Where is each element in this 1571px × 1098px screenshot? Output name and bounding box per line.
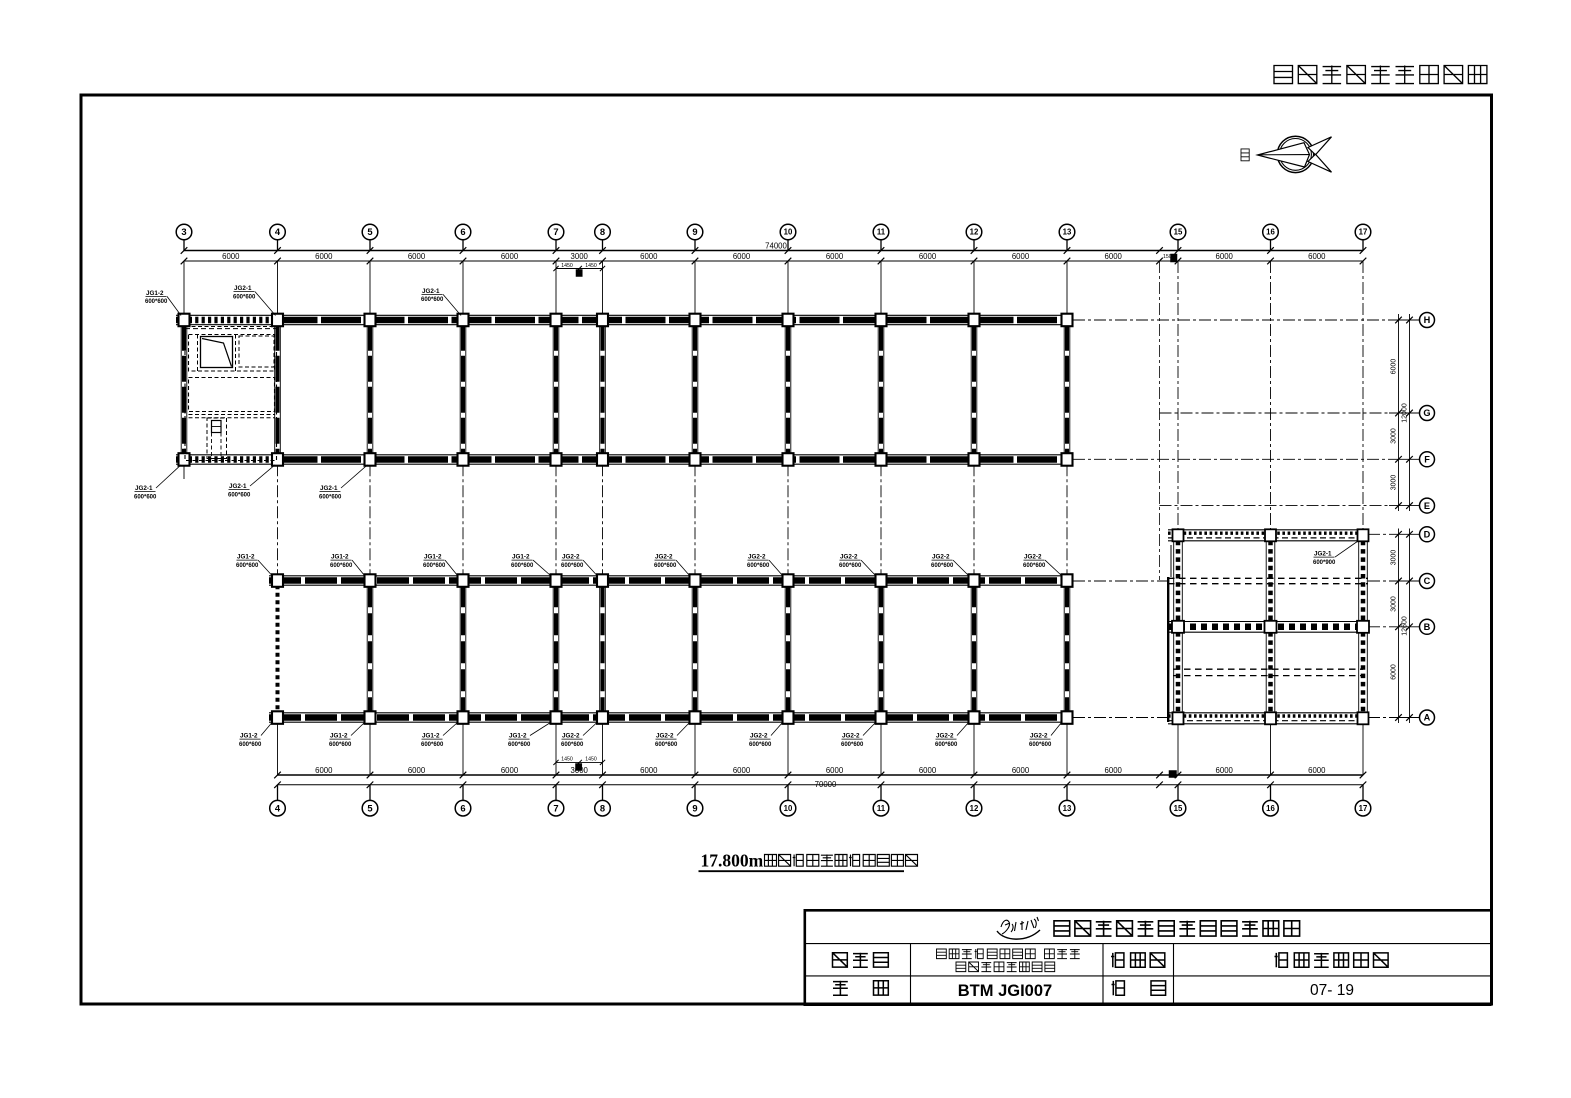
svg-text:6000: 6000 <box>1308 252 1326 261</box>
svg-text:6000: 6000 <box>733 252 751 261</box>
svg-text:1450: 1450 <box>585 263 597 269</box>
svg-text:6000: 6000 <box>640 252 658 261</box>
svg-text:D: D <box>1424 530 1431 540</box>
svg-text:12000: 12000 <box>1402 403 1409 423</box>
svg-text:600*600: 600*600 <box>423 563 446 569</box>
svg-text:JG2-2: JG2-2 <box>562 733 580 740</box>
svg-text:6000: 6000 <box>501 252 519 261</box>
svg-text:JG2-2: JG2-2 <box>562 554 580 561</box>
svg-text:6000: 6000 <box>1012 766 1030 775</box>
svg-text:600*600: 600*600 <box>655 742 678 748</box>
svg-text:3000: 3000 <box>571 252 589 261</box>
svg-text:11: 11 <box>877 228 886 237</box>
svg-text:600*600: 600*600 <box>747 563 770 569</box>
svg-text:3: 3 <box>181 226 186 237</box>
svg-text:1450: 1450 <box>561 263 573 269</box>
svg-text:600*600: 600*600 <box>931 563 954 569</box>
svg-text:5: 5 <box>367 802 372 813</box>
svg-text:JG2-2: JG2-2 <box>656 733 674 740</box>
svg-text:15: 15 <box>1174 228 1183 237</box>
svg-text:6000: 6000 <box>1391 664 1398 680</box>
svg-text:BTM JGI007: BTM JGI007 <box>958 982 1052 1000</box>
svg-text:600*600: 600*600 <box>228 492 251 498</box>
svg-text:B: B <box>1424 622 1431 632</box>
svg-text:6000: 6000 <box>1012 252 1030 261</box>
svg-text:9: 9 <box>692 802 697 813</box>
svg-text:JG2-1: JG2-1 <box>135 485 153 492</box>
svg-text:10: 10 <box>784 228 793 237</box>
svg-text:JG2-2: JG2-2 <box>936 733 954 740</box>
svg-text:600*600: 600*600 <box>511 563 534 569</box>
svg-text:7: 7 <box>553 226 558 237</box>
svg-text:5: 5 <box>367 226 372 237</box>
svg-text:600*600: 600*600 <box>239 742 262 748</box>
svg-text:600*600: 600*600 <box>508 742 531 748</box>
svg-text:10: 10 <box>784 804 793 813</box>
svg-text:13: 13 <box>1063 228 1072 237</box>
svg-text:JG1-2: JG1-2 <box>424 554 442 561</box>
svg-text:600*600: 600*600 <box>654 563 677 569</box>
svg-text:600*600: 600*600 <box>236 563 259 569</box>
svg-text:F: F <box>1424 455 1430 465</box>
svg-text:600*600: 600*600 <box>841 742 864 748</box>
svg-text:74000: 74000 <box>765 241 787 250</box>
svg-text:70000: 70000 <box>815 780 837 789</box>
svg-text:600*600: 600*600 <box>1023 563 1046 569</box>
svg-text:600*600: 600*600 <box>561 563 584 569</box>
svg-text:C: C <box>1424 576 1431 586</box>
svg-text:A: A <box>1424 713 1431 723</box>
svg-text:4: 4 <box>275 226 281 237</box>
svg-text:JG2-2: JG2-2 <box>750 733 768 740</box>
svg-text:JG2-1: JG2-1 <box>422 288 440 295</box>
svg-text:6000: 6000 <box>826 252 844 261</box>
svg-text:3000: 3000 <box>1391 475 1398 491</box>
svg-text:13: 13 <box>1063 804 1072 813</box>
svg-text:12: 12 <box>970 228 979 237</box>
svg-text:6000: 6000 <box>1216 252 1234 261</box>
svg-text:600*600: 600*600 <box>421 742 444 748</box>
svg-text:JG1-2: JG1-2 <box>240 733 258 740</box>
svg-text:8: 8 <box>600 226 605 237</box>
svg-text:17: 17 <box>1359 804 1368 813</box>
svg-text:6000: 6000 <box>1105 252 1123 261</box>
svg-text:6000: 6000 <box>315 766 333 775</box>
svg-text:6000: 6000 <box>919 766 937 775</box>
svg-text:6000: 6000 <box>919 252 937 261</box>
svg-text:11: 11 <box>877 804 886 813</box>
svg-text:6000: 6000 <box>222 252 240 261</box>
svg-text:12: 12 <box>970 804 979 813</box>
svg-text:JG2-2: JG2-2 <box>842 733 860 740</box>
svg-text:JG1-2: JG1-2 <box>331 554 349 561</box>
svg-text:6000: 6000 <box>640 766 658 775</box>
svg-text:JG2-2: JG2-2 <box>748 554 766 561</box>
svg-text:600*600: 600*600 <box>839 563 862 569</box>
svg-text:6000: 6000 <box>1308 766 1326 775</box>
svg-text:JG1-2: JG1-2 <box>146 290 164 297</box>
svg-text:15: 15 <box>1174 804 1183 813</box>
svg-text:600*600: 600*600 <box>1029 742 1052 748</box>
svg-text:JG1-2: JG1-2 <box>509 733 527 740</box>
svg-text:6000: 6000 <box>1105 766 1123 775</box>
svg-text:E: E <box>1424 501 1430 511</box>
svg-text:600*600: 600*600 <box>319 494 342 500</box>
svg-text:6000: 6000 <box>826 766 844 775</box>
svg-text:4: 4 <box>275 802 281 813</box>
svg-text:3000: 3000 <box>1391 428 1398 444</box>
svg-text:6000: 6000 <box>1216 766 1234 775</box>
svg-text:8: 8 <box>600 802 605 813</box>
svg-text:JG2-2: JG2-2 <box>655 554 673 561</box>
svg-text:16: 16 <box>1266 804 1275 813</box>
svg-text:600*600: 600*600 <box>329 742 352 748</box>
svg-text:600*600: 600*600 <box>330 563 353 569</box>
svg-text:JG2-1: JG2-1 <box>229 483 247 490</box>
svg-text:6: 6 <box>460 802 465 813</box>
svg-text:JG1-2: JG1-2 <box>422 733 440 740</box>
svg-text:JG2-2: JG2-2 <box>932 554 950 561</box>
svg-text:6000: 6000 <box>501 766 519 775</box>
svg-text:600*600: 600*600 <box>145 299 168 305</box>
svg-text:3000: 3000 <box>1391 550 1398 566</box>
svg-text:600*600: 600*600 <box>421 297 444 303</box>
svg-text:JG2-1: JG2-1 <box>1314 551 1332 558</box>
svg-text:600*600: 600*600 <box>935 742 958 748</box>
svg-text:600*600: 600*600 <box>233 294 256 300</box>
svg-text:6: 6 <box>460 226 465 237</box>
svg-text:JG1-2: JG1-2 <box>512 554 530 561</box>
svg-text:17.800m: 17.800m <box>701 851 764 871</box>
svg-text:6000: 6000 <box>1391 359 1398 375</box>
svg-text:JG2-1: JG2-1 <box>234 285 252 292</box>
svg-text:9: 9 <box>692 226 697 237</box>
svg-text:3000: 3000 <box>1391 596 1398 612</box>
svg-text:H: H <box>1424 315 1431 325</box>
svg-text:JG1-2: JG1-2 <box>237 554 255 561</box>
svg-text:600*600: 600*600 <box>561 742 584 748</box>
svg-text:G: G <box>1423 408 1430 418</box>
svg-text:JG2-2: JG2-2 <box>1030 733 1048 740</box>
svg-text:JG2-1: JG2-1 <box>320 485 338 492</box>
svg-text:12600: 12600 <box>1402 616 1409 636</box>
svg-text:16: 16 <box>1266 228 1275 237</box>
svg-text:600*600: 600*600 <box>749 742 772 748</box>
svg-text:6000: 6000 <box>315 252 333 261</box>
svg-text:JG2-2: JG2-2 <box>1024 554 1042 561</box>
svg-text:6000: 6000 <box>408 766 426 775</box>
svg-text:600*600: 600*600 <box>134 494 157 500</box>
svg-text:7: 7 <box>553 802 558 813</box>
svg-text:600*900: 600*900 <box>1313 560 1336 566</box>
svg-text:JG2-2: JG2-2 <box>840 554 858 561</box>
svg-text:1450: 1450 <box>561 757 573 763</box>
svg-text:JG1-2: JG1-2 <box>330 733 348 740</box>
svg-text:07- 19: 07- 19 <box>1310 982 1354 999</box>
svg-text:1450: 1450 <box>585 757 597 763</box>
svg-text:6000: 6000 <box>408 252 426 261</box>
svg-text:17: 17 <box>1359 228 1368 237</box>
svg-text:6000: 6000 <box>733 766 751 775</box>
